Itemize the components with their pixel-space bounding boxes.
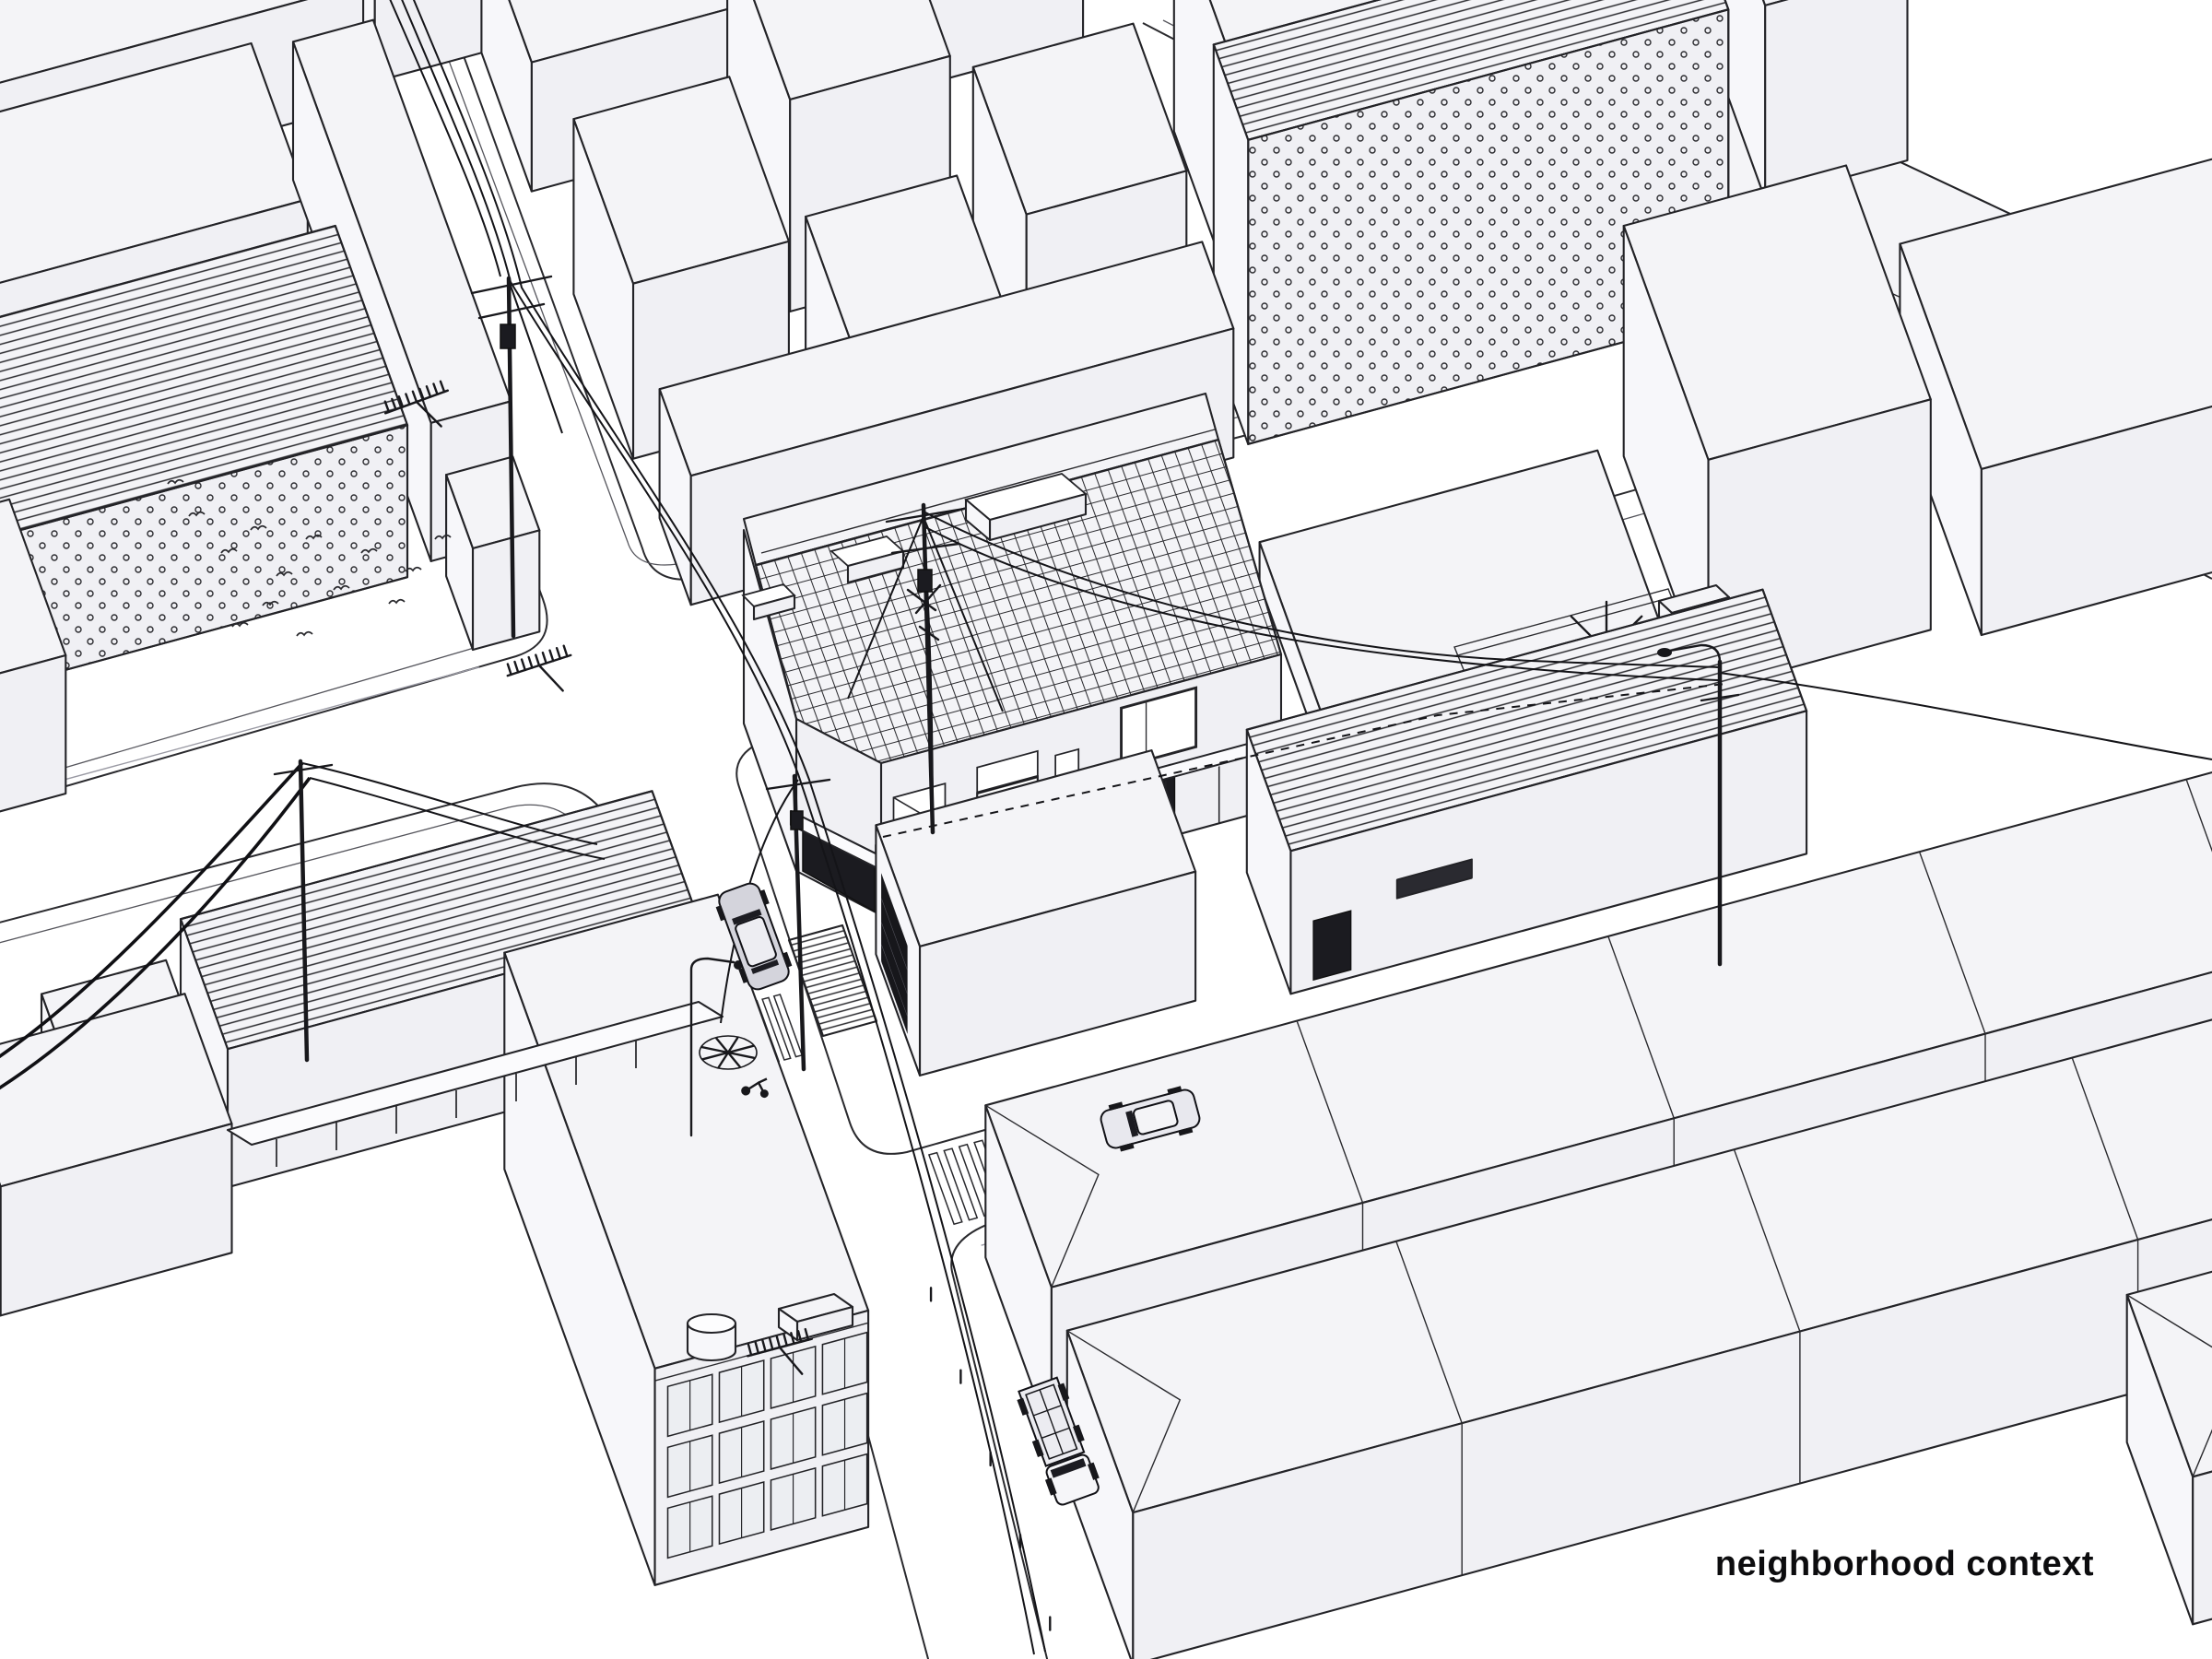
transformer [500, 324, 515, 348]
transformer [791, 811, 803, 829]
caption-neighborhood-context: neighborhood context [1715, 1545, 2094, 1584]
block-sw-edge [0, 994, 231, 1315]
transformer [918, 570, 932, 592]
block-nw-corner-small [446, 457, 539, 651]
bird-icon [297, 632, 312, 636]
dark-doorway [1313, 911, 1351, 980]
lot-line [7, 667, 478, 795]
antenna-icon [504, 644, 581, 705]
water-tank-cylinder [688, 1314, 735, 1360]
bird-icon [389, 600, 405, 604]
drawing-page: neighborhood context [0, 0, 2212, 1659]
axonometric-drawing [0, 0, 2212, 1659]
